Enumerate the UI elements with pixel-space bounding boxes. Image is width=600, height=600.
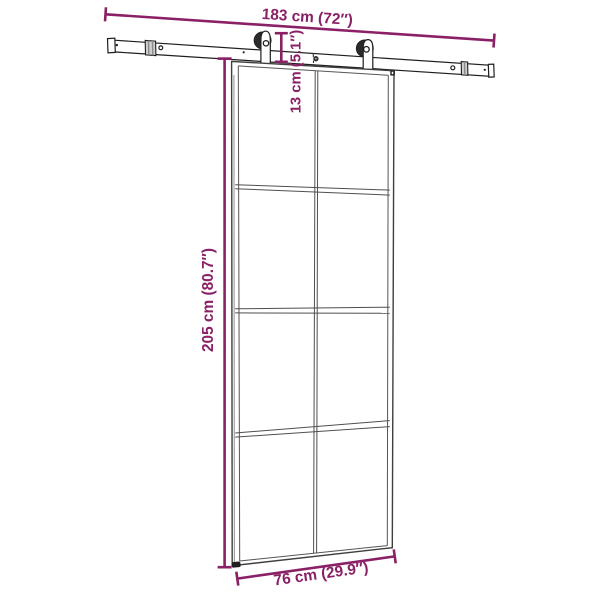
svg-text:205 cm (80.7″): 205 cm (80.7″) (200, 248, 217, 352)
svg-text:13 cm (5.1″): 13 cm (5.1″) (289, 30, 305, 114)
